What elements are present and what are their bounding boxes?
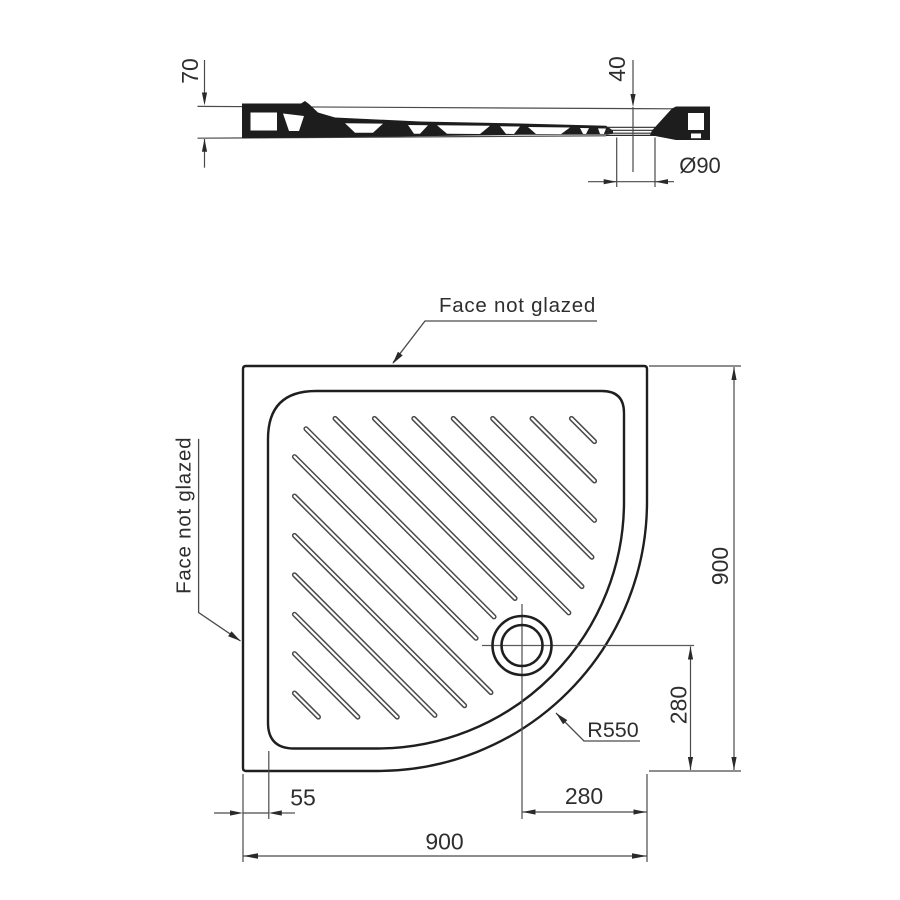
svg-text:70: 70: [177, 58, 203, 84]
svg-text:Face not glazed: Face not glazed: [439, 294, 596, 317]
svg-text:280: 280: [565, 783, 603, 809]
svg-text:280: 280: [666, 686, 692, 724]
svg-text:40: 40: [604, 56, 630, 82]
svg-text:R550: R550: [587, 718, 638, 742]
svg-text:Ø90: Ø90: [679, 153, 721, 178]
svg-text:55: 55: [290, 785, 316, 811]
svg-text:900: 900: [707, 547, 733, 585]
svg-text:Face not glazed: Face not glazed: [172, 437, 195, 594]
svg-text:900: 900: [425, 829, 463, 855]
